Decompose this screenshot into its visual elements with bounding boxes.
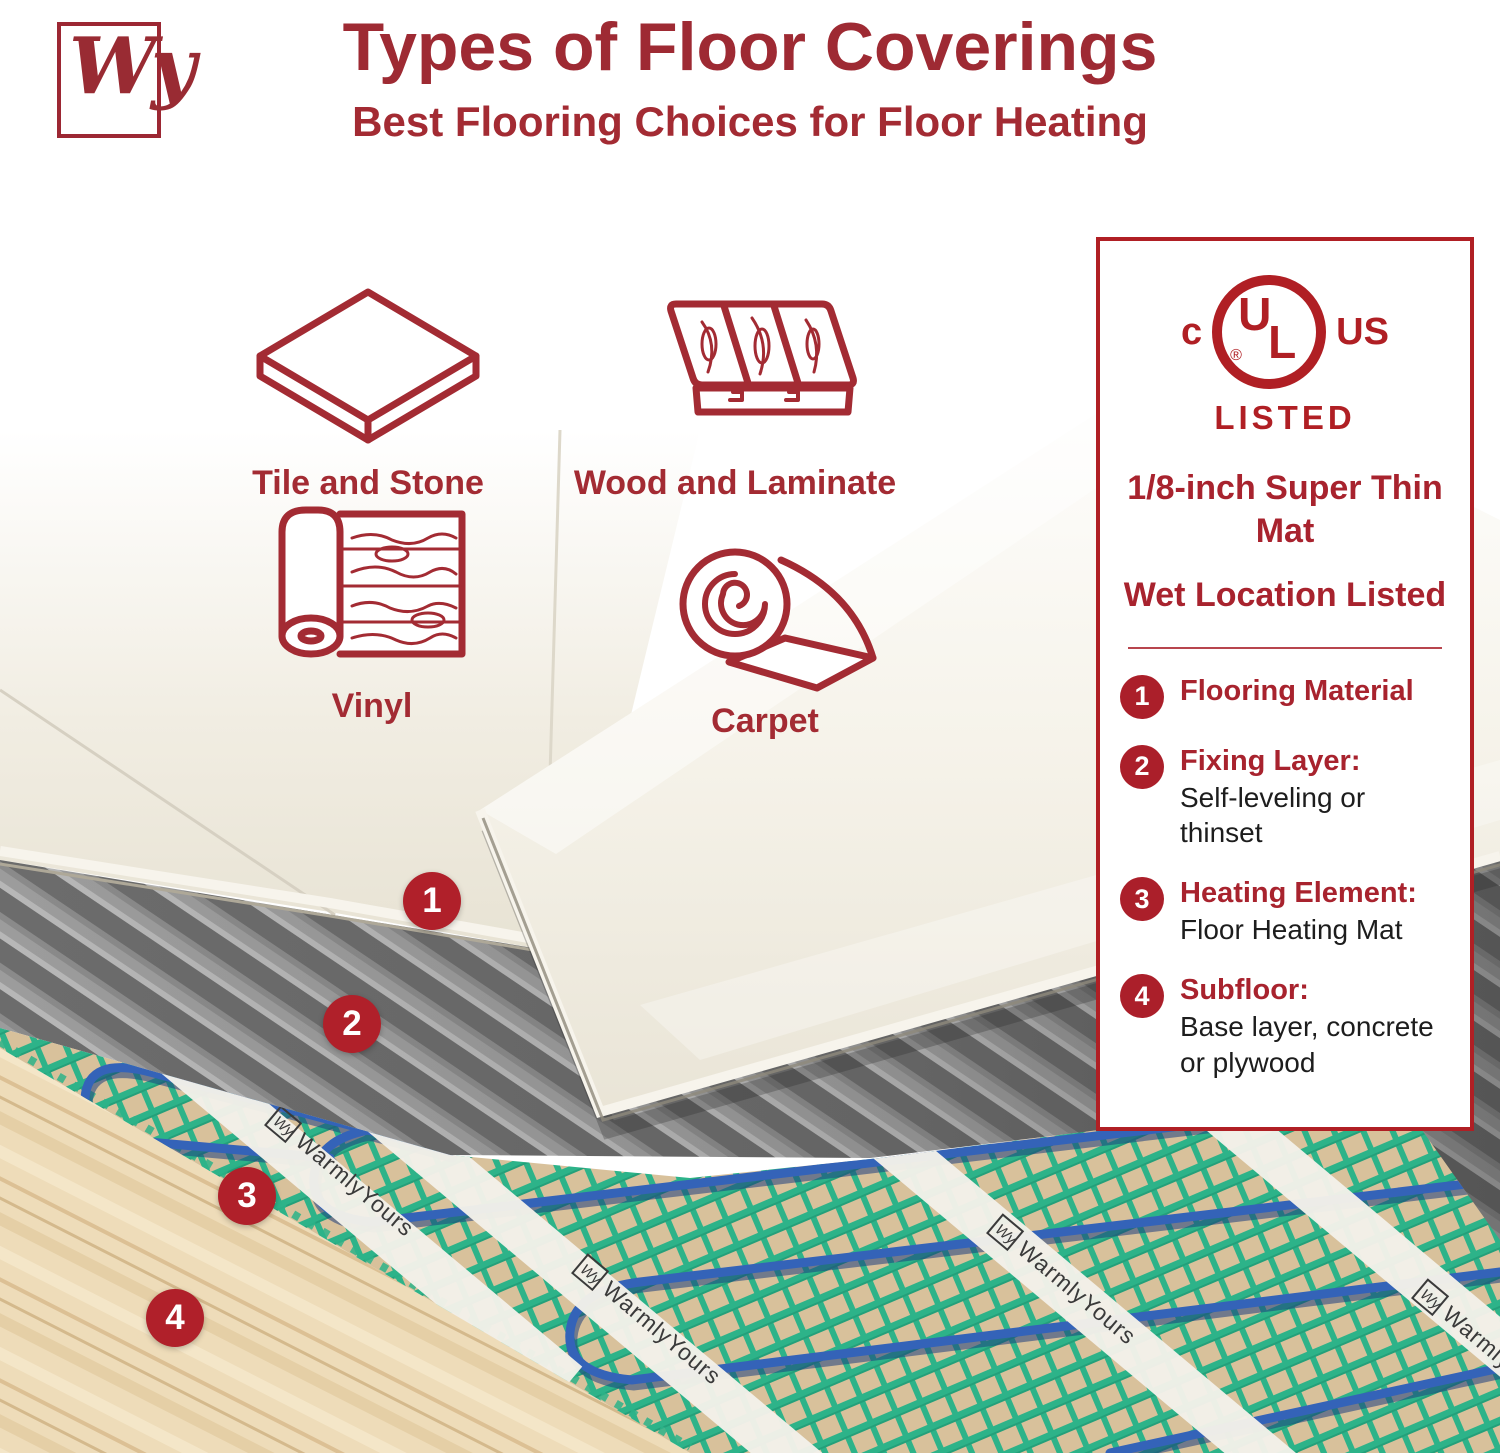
flooring-type-vinyl: Vinyl [212,505,532,726]
carpet-roll-icon [635,520,895,688]
legend-item-description: Self-leveling or thinset [1180,780,1450,852]
vinyl-roll-icon [252,505,492,673]
flooring-type-label: Wood and Laminate [574,464,896,503]
layer-legend: 1 Flooring Material 2 Fixing Layer: Self… [1120,673,1450,1081]
panel-headline-mat: 1/8-inch Super Thin Mat [1120,467,1450,552]
legend-item-title: Flooring Material [1180,675,1414,707]
legend-item-heating-element: 3 Heating Element: Floor Heating Mat [1120,875,1450,948]
ul-mark-circle-icon: U L ® [1212,275,1326,389]
diagram-marker-flooring: 1 [403,872,461,930]
infographic-root: Wy WarmlyYours Wy WarmlyYours Wy WarmlyY… [0,0,1500,1453]
flooring-type-carpet: Carpet [605,520,925,741]
ul-mark-c: c [1181,311,1202,354]
diagram-marker-heating-element: 3 [218,1167,276,1225]
ul-mark-u: U [1238,287,1271,341]
page-title: Types of Floor Coverings [0,8,1500,86]
flooring-type-label: Vinyl [332,687,413,726]
panel-divider [1128,647,1442,649]
page-subtitle: Best Flooring Choices for Floor Heating [0,98,1500,146]
legend-item-title: Subfloor: [1180,974,1309,1006]
legend-number-badge: 1 [1120,675,1164,719]
flooring-type-wood: Wood and Laminate [575,282,895,503]
ul-mark-caption: LISTED [1120,399,1450,437]
diagram-marker-fixing-layer: 2 [323,995,381,1053]
wood-plank-icon [610,282,860,450]
ul-mark-registered: ® [1230,347,1242,365]
legend-number-badge: 4 [1120,974,1164,1018]
ul-listed-mark: c U L ® US [1120,275,1450,389]
panel-headline-wet-location: Wet Location Listed [1120,574,1450,617]
legend-item-description: Floor Heating Mat [1180,912,1417,948]
brand-logo-monogram: Wy [69,20,192,114]
legend-number-badge: 2 [1120,745,1164,789]
legend-item-description: Base layer, concrete or plywood [1180,1009,1450,1081]
flooring-type-label: Carpet [711,702,819,741]
tile-icon [248,282,488,450]
product-info-panel: c U L ® US LISTED 1/8-inch Super Thin Ma… [1096,237,1474,1131]
legend-item-title: Heating Element: [1180,877,1417,909]
ul-mark-l: L [1268,315,1296,369]
ul-mark-us: US [1336,311,1389,354]
brand-logo: Wy [57,22,161,138]
legend-item-flooring-material: 1 Flooring Material [1120,673,1450,719]
legend-number-badge: 3 [1120,877,1164,921]
legend-item-subfloor: 4 Subfloor: Base layer, concrete or plyw… [1120,972,1450,1081]
legend-item-title: Fixing Layer: [1180,745,1361,777]
legend-item-fixing-layer: 2 Fixing Layer: Self-leveling or thinset [1120,743,1450,852]
flooring-type-tile: Tile and Stone [208,282,528,503]
diagram-marker-subfloor: 4 [146,1289,204,1347]
